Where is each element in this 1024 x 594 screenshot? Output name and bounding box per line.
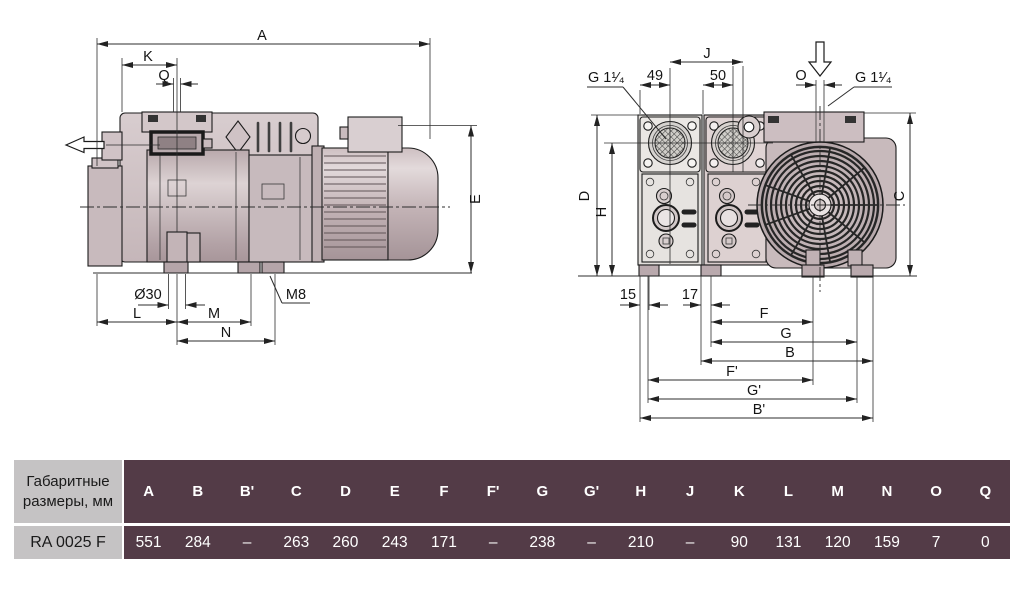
dim-label-q: Q	[158, 68, 169, 84]
dim-label-49: 49	[647, 68, 663, 84]
dim-label-l: L	[133, 306, 141, 322]
header-cell: E	[370, 460, 419, 526]
header-cell: G'	[567, 460, 616, 526]
value-cell: 90	[715, 526, 764, 559]
datasheet-page: A K Q E Ø30	[0, 0, 1024, 594]
value-cell: 260	[321, 526, 370, 559]
header-cell: J	[665, 460, 714, 526]
dim-label-n: N	[221, 325, 231, 341]
table-header-row: Габаритные размеры, мм A B B' C D E F F'…	[14, 460, 1010, 526]
value-cell: 159	[862, 526, 911, 559]
inlet-arrow-icon	[809, 42, 831, 76]
value-cell: 551	[124, 526, 173, 559]
value-cell: –	[222, 526, 271, 559]
dim-label-f2: F'	[726, 364, 738, 380]
header-cell: A	[124, 460, 173, 526]
value-cell: 243	[370, 526, 419, 559]
header-cell: G	[518, 460, 567, 526]
dim-label-15: 15	[620, 287, 636, 303]
dim-label-a: A	[257, 28, 267, 44]
dim-label-f: F	[760, 306, 769, 322]
dim-label-g114-right: G 1¹⁄₄	[855, 70, 892, 86]
side-view: A K Q E Ø30	[66, 28, 484, 345]
header-cell: D	[321, 460, 370, 526]
table-corner-cell: Габаритные размеры, мм	[14, 460, 124, 526]
dimensions-table: Габаритные размеры, мм A B B' C D E F F'…	[14, 460, 1010, 559]
side-pump-body	[80, 112, 472, 273]
dim-label-d: D	[577, 191, 593, 201]
header-cell: K	[715, 460, 764, 526]
table-value-row: RA 0025 F 551 284 – 263 260 243 171 – 23…	[14, 526, 1010, 559]
dim-label-dia30: Ø30	[134, 287, 161, 303]
rear-pump-body	[578, 106, 917, 292]
header-cell: F'	[469, 460, 518, 526]
value-cell: 284	[173, 526, 222, 559]
dim-label-m8: M8	[286, 287, 306, 303]
dim-label-b2: B'	[753, 402, 766, 418]
dim-label-e: E	[468, 194, 484, 204]
dim-label-g2: G'	[747, 383, 761, 399]
header-cell: N	[862, 460, 911, 526]
model-cell: RA 0025 F	[14, 526, 124, 559]
value-cell: 263	[272, 526, 321, 559]
rear-view: G 1¹⁄₄ 49 J 50 O G 1¹⁄₄	[577, 42, 917, 422]
dim-label-c: C	[892, 191, 908, 201]
value-cell: 7	[912, 526, 961, 559]
dim-label-50: 50	[710, 68, 726, 84]
value-cell: –	[665, 526, 714, 559]
dim-label-b: B	[785, 345, 795, 361]
header-cell: B	[173, 460, 222, 526]
dim-label-g114-left: G 1¹⁄₄	[588, 70, 625, 86]
header-cell: B'	[222, 460, 271, 526]
header-cell: F	[419, 460, 468, 526]
header-cell: L	[764, 460, 813, 526]
header-cell: H	[616, 460, 665, 526]
value-cell: 238	[518, 526, 567, 559]
header-cell: M	[813, 460, 862, 526]
dim-label-k: K	[143, 49, 153, 65]
value-cell: 120	[813, 526, 862, 559]
header-cell: C	[272, 460, 321, 526]
technical-drawing: A K Q E Ø30	[0, 0, 1024, 450]
header-cell: O	[912, 460, 961, 526]
dim-label-o: O	[795, 68, 806, 84]
dim-label-j: J	[703, 46, 710, 62]
value-cell: –	[567, 526, 616, 559]
value-cell: 131	[764, 526, 813, 559]
header-cell: Q	[961, 460, 1010, 526]
value-cell: 0	[961, 526, 1010, 559]
value-cell: –	[469, 526, 518, 559]
dim-label-g: G	[780, 326, 791, 342]
dim-label-h: H	[594, 207, 610, 217]
value-cell: 171	[419, 526, 468, 559]
exhaust-arrow-icon	[66, 137, 104, 153]
dim-label-m: M	[208, 306, 220, 322]
dim-label-17: 17	[682, 287, 698, 303]
value-cell: 210	[616, 526, 665, 559]
